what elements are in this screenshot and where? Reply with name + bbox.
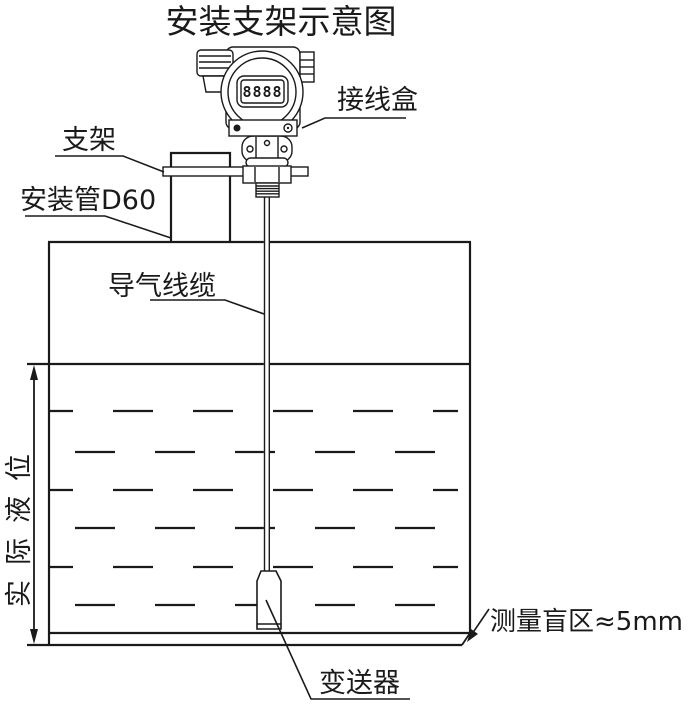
threaded-stem (256, 183, 279, 197)
arrow-down-icon (30, 629, 38, 644)
probe (257, 571, 281, 629)
junction-box-leader (302, 118, 406, 128)
air-cable-label: 导气线缆 (108, 271, 216, 302)
bracket-label: 支架 (62, 125, 116, 156)
vent-plug-icon (300, 52, 314, 82)
blind-zone-label: 测量盲区≈5mm (490, 607, 683, 637)
hex-nut (243, 166, 291, 183)
process-connection (242, 136, 292, 167)
mounting-pipe-leader (25, 216, 171, 238)
transmitter-label: 变送器 (319, 668, 400, 699)
junction-box-body: 8888 (197, 47, 314, 136)
junction-box-label: 接线盒 (337, 85, 418, 116)
mounting-pipe-label: 安装管D60 (20, 185, 156, 216)
display: 8888 (237, 76, 288, 107)
installation-bracket-diagram: 8888 实际液位 接线盒 支架 安装管D60 导气线缆 测量盲区≈5mm 变送… (0, 0, 700, 708)
actual-level-label: 实际液位 (4, 439, 35, 607)
diagram-title: 安装支架示意图 (166, 2, 397, 41)
tank-bottom (27, 633, 470, 645)
diagram-svg: 8888 实际液位 接线盒 支架 安装管D60 导气线缆 测量盲区≈5mm 变送… (0, 0, 700, 708)
liquid-dashes (49, 411, 458, 605)
arrow-up-icon (30, 365, 38, 380)
bolt-icon (234, 125, 241, 132)
lcd-digits: 8888 (242, 83, 282, 101)
air-cable-leader (150, 300, 264, 314)
bracket-leader (55, 156, 164, 172)
air-cable-line (264, 197, 270, 573)
